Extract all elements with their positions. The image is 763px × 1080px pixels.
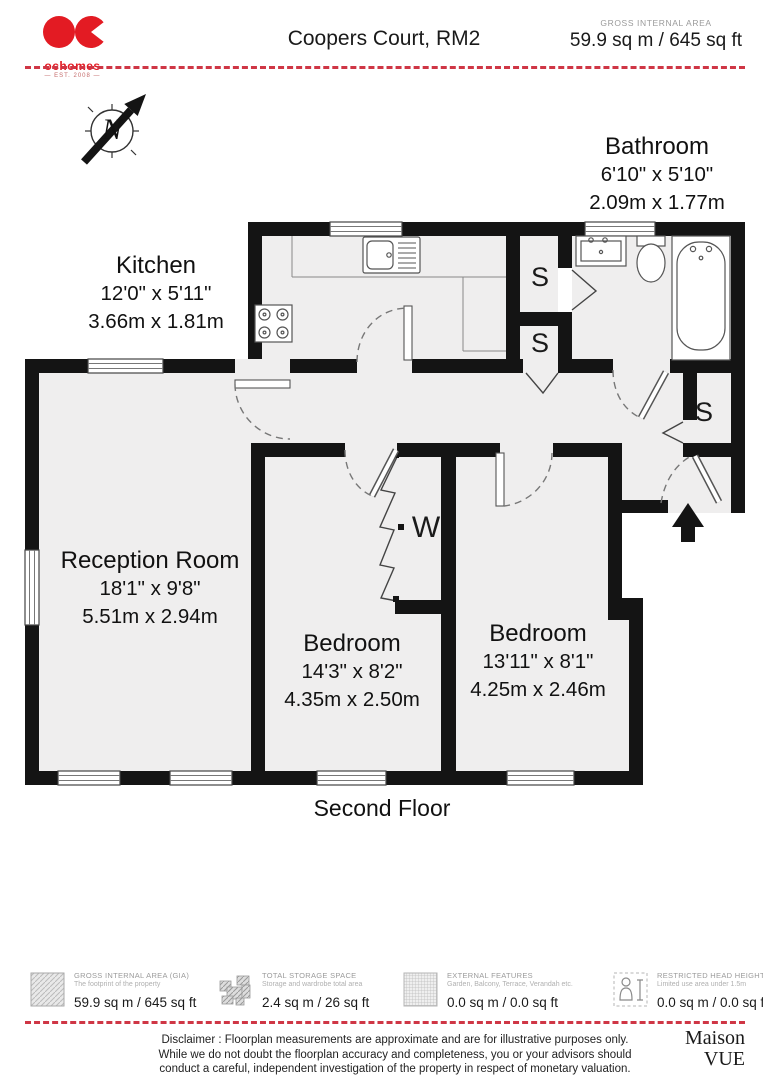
legend-value: 59.9 sq m / 645 sq ft bbox=[74, 995, 196, 1010]
floorplan-page: ochomes — EST. 2008 — Coopers Court, RM2… bbox=[0, 0, 763, 1080]
bathtub-icon bbox=[672, 236, 730, 360]
legend-title: TOTAL STORAGE SPACE bbox=[262, 971, 369, 980]
legend-item-storage: TOTAL STORAGE SPACE Storage and wardrobe… bbox=[218, 971, 398, 1015]
legend-item-head-height: RESTRICTED HEAD HEIGHT Limited use area … bbox=[613, 971, 753, 1015]
stove-icon bbox=[255, 305, 292, 342]
disclaimer-line: Disclaimer : Floorplan measurements are … bbox=[110, 1033, 680, 1048]
legend-value: 2.4 sq m / 26 sq ft bbox=[262, 995, 369, 1010]
legend-subtitle: Storage and wardrobe total area bbox=[262, 980, 369, 989]
disclaimer: Disclaimer : Floorplan measurements are … bbox=[110, 1033, 680, 1077]
legend-title: EXTERNAL FEATURES bbox=[447, 971, 573, 980]
storage-marker-1: S bbox=[531, 262, 549, 293]
room-dim-metric: 2.09m x 1.77m bbox=[589, 189, 725, 217]
footer-divider bbox=[25, 1021, 745, 1024]
storage-hatch-icon bbox=[218, 972, 253, 1007]
compass-north-label: N bbox=[102, 113, 122, 147]
maison-vue-brand: Maison VUE bbox=[660, 1028, 745, 1070]
wardrobe-marker: W bbox=[412, 511, 440, 545]
gia-hatch-icon bbox=[30, 972, 65, 1007]
toilet-icon bbox=[637, 236, 665, 282]
storage-marker-3: S bbox=[695, 397, 713, 428]
brand-line-2: VUE bbox=[660, 1049, 745, 1070]
room-name: Bathroom bbox=[589, 133, 725, 161]
room-dim-metric: 4.25m x 2.46m bbox=[470, 676, 606, 704]
brand-line-1: Maison bbox=[660, 1028, 745, 1049]
room-label-kitchen: Kitchen 12'0" x 5'11" 3.66m x 1.81m bbox=[88, 252, 224, 336]
room-dim-imperial: 18'1" x 9'8" bbox=[61, 575, 240, 603]
room-name: Reception Room bbox=[61, 547, 240, 575]
disclaimer-line: While we do not doubt the floorplan accu… bbox=[110, 1048, 680, 1063]
room-label-reception: Reception Room 18'1" x 9'8" 5.51m x 2.94… bbox=[61, 547, 240, 631]
room-dim-imperial: 6'10" x 5'10" bbox=[589, 161, 725, 189]
room-dim-metric: 5.51m x 2.94m bbox=[61, 603, 240, 631]
room-dim-metric: 3.66m x 1.81m bbox=[88, 308, 224, 336]
kitchen-sink-icon bbox=[363, 237, 420, 273]
room-label-bedroom1: Bedroom 14'3" x 8'2" 4.35m x 2.50m bbox=[284, 630, 420, 714]
room-dim-imperial: 12'0" x 5'11" bbox=[88, 280, 224, 308]
bathroom-sink-icon bbox=[576, 236, 626, 266]
room-label-bathroom: Bathroom 6'10" x 5'10" 2.09m x 1.77m bbox=[589, 133, 725, 217]
room-name: Bedroom bbox=[284, 630, 420, 658]
room-name: Kitchen bbox=[88, 252, 224, 280]
external-grid-icon bbox=[403, 972, 438, 1007]
disclaimer-line: conduct a careful, independent investiga… bbox=[110, 1062, 680, 1077]
legend-subtitle: Garden, Balcony, Terrace, Verandah etc. bbox=[447, 980, 573, 989]
legend-item-external: EXTERNAL FEATURES Garden, Balcony, Terra… bbox=[403, 971, 598, 1015]
room-dim-imperial: 13'11" x 8'1" bbox=[470, 648, 606, 676]
legend-item-gia: GROSS INTERNAL AREA (GIA) The footprint … bbox=[30, 971, 210, 1015]
room-dim-imperial: 14'3" x 8'2" bbox=[284, 658, 420, 686]
legend-subtitle: The footprint of the property bbox=[74, 980, 196, 989]
legend-value: 0.0 sq m / 0.0 sq ft bbox=[657, 995, 763, 1010]
legend-title: RESTRICTED HEAD HEIGHT bbox=[657, 971, 763, 980]
room-dim-metric: 4.35m x 2.50m bbox=[284, 686, 420, 714]
head-height-person-icon bbox=[613, 972, 648, 1007]
floor-title: Second Floor bbox=[314, 795, 451, 822]
room-label-bedroom2: Bedroom 13'11" x 8'1" 4.25m x 2.46m bbox=[470, 620, 606, 704]
storage-marker-2: S bbox=[531, 328, 549, 359]
legend-subtitle: Limited use area under 1.5m bbox=[657, 980, 763, 989]
legend-value: 0.0 sq m / 0.0 sq ft bbox=[447, 995, 573, 1010]
legend-title: GROSS INTERNAL AREA (GIA) bbox=[74, 971, 196, 980]
room-name: Bedroom bbox=[470, 620, 606, 648]
